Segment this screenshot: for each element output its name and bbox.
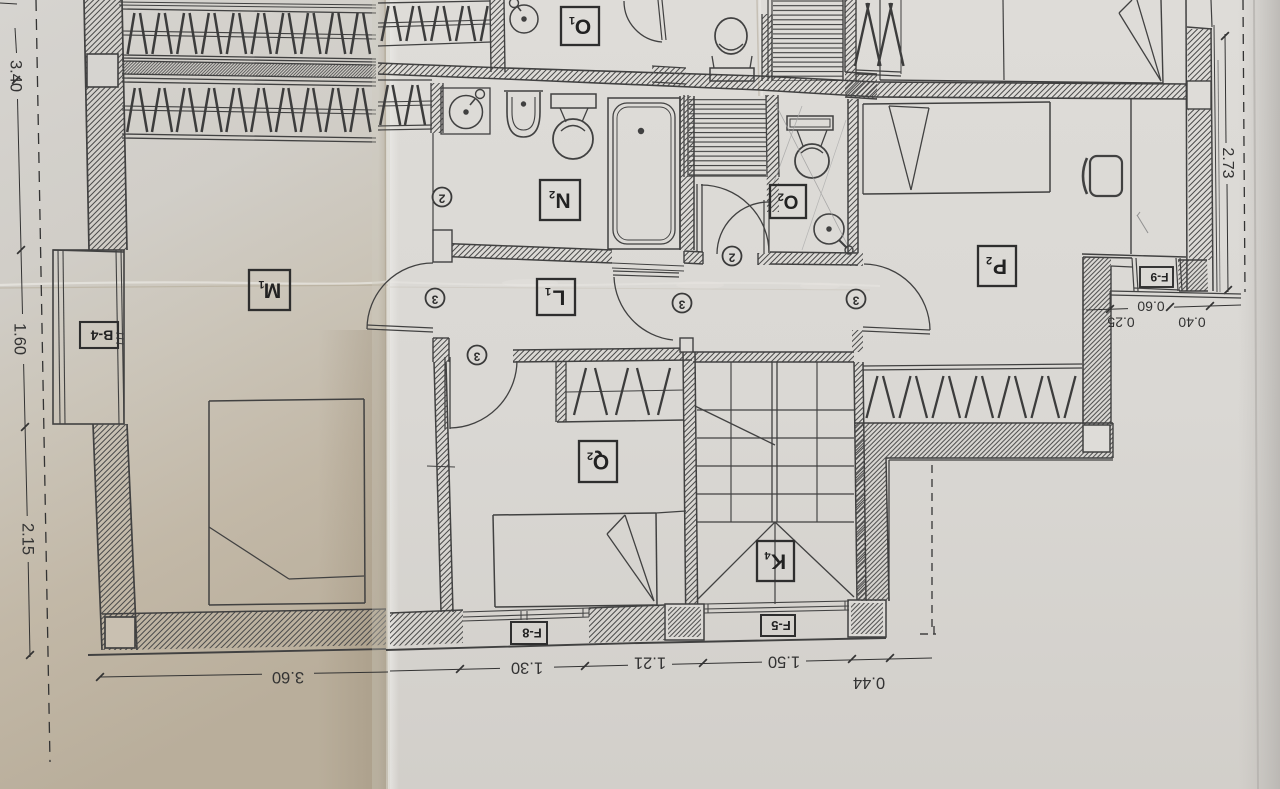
svg-text:1: 1 xyxy=(545,285,551,297)
svg-text:1.30: 1.30 xyxy=(511,659,543,677)
svg-text:3: 3 xyxy=(678,297,685,311)
svg-text:F-8: F-8 xyxy=(522,626,542,641)
svg-text:B-4: B-4 xyxy=(91,327,114,343)
svg-text:F-9: F-9 xyxy=(1150,270,1168,284)
svg-text:2: 2 xyxy=(438,191,445,205)
svg-text:2.15: 2.15 xyxy=(19,523,37,555)
svg-text:1.60: 1.60 xyxy=(11,323,29,355)
svg-text:Q: Q xyxy=(593,450,609,473)
svg-text:4: 4 xyxy=(764,549,771,561)
svg-text:2: 2 xyxy=(986,254,992,266)
svg-text:2: 2 xyxy=(728,250,735,264)
svg-text:1: 1 xyxy=(569,14,575,26)
svg-text:0.44: 0.44 xyxy=(853,674,885,692)
svg-text:M: M xyxy=(264,278,282,301)
svg-text:F-5: F-5 xyxy=(771,618,791,633)
svg-text:N: N xyxy=(555,188,570,211)
svg-text:3: 3 xyxy=(473,349,480,363)
svg-text:O: O xyxy=(575,14,591,37)
svg-text:3.60: 3.60 xyxy=(272,668,304,686)
svg-text:1.50: 1.50 xyxy=(768,653,800,671)
svg-text:3: 3 xyxy=(852,293,859,307)
svg-text:2.73: 2.73 xyxy=(1219,147,1236,178)
svg-text:0.25: 0.25 xyxy=(1107,314,1134,330)
svg-text:2: 2 xyxy=(587,450,593,462)
svg-text:3: 3 xyxy=(431,292,438,306)
svg-text:1: 1 xyxy=(258,278,264,290)
svg-text:O: O xyxy=(784,190,799,211)
svg-text:K: K xyxy=(771,549,786,572)
svg-text:2: 2 xyxy=(549,188,555,200)
svg-text:0.60: 0.60 xyxy=(1137,298,1164,314)
svg-text:3.40: 3.40 xyxy=(7,60,25,92)
svg-text:P: P xyxy=(993,254,1007,277)
svg-text:L: L xyxy=(552,285,565,308)
svg-text:1.21: 1.21 xyxy=(634,654,666,672)
svg-text:2: 2 xyxy=(778,190,784,202)
svg-text:0.40: 0.40 xyxy=(1178,314,1205,330)
